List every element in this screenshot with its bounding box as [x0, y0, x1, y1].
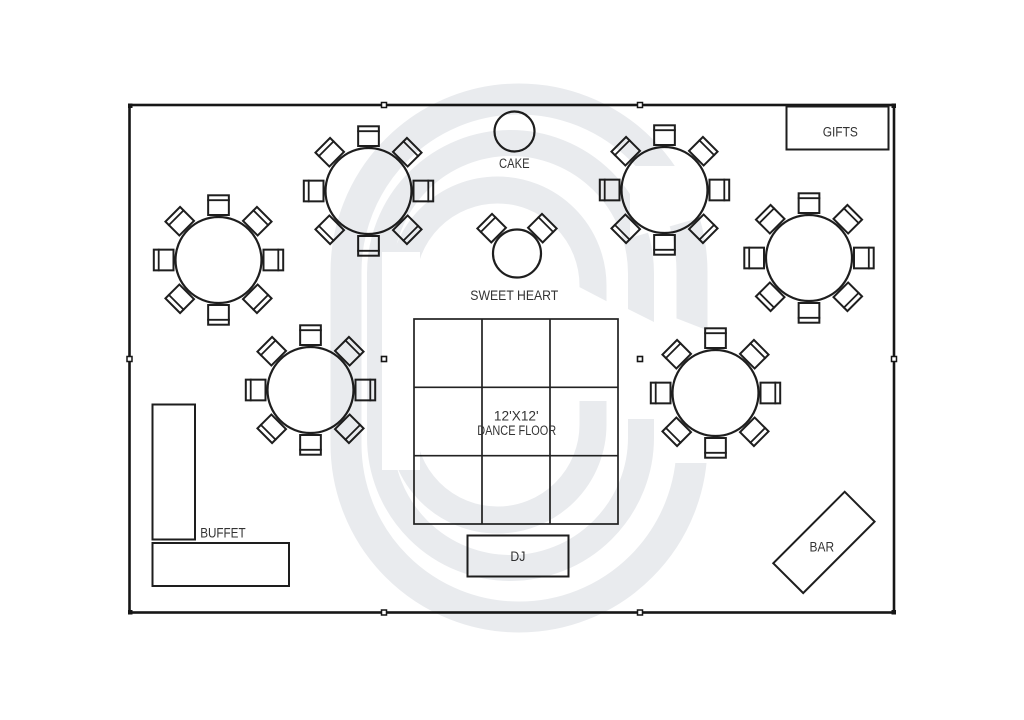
- svg-text:CAKE: CAKE: [499, 156, 530, 171]
- svg-text:BUFFET: BUFFET: [200, 525, 245, 540]
- svg-text:SWEET HEART: SWEET HEART: [470, 288, 558, 303]
- svg-text:BAR: BAR: [810, 540, 835, 555]
- svg-text:DANCE FLOOR: DANCE FLOOR: [477, 423, 556, 438]
- svg-text:12'X12': 12'X12': [494, 408, 539, 423]
- svg-text:GIFTS: GIFTS: [823, 124, 858, 139]
